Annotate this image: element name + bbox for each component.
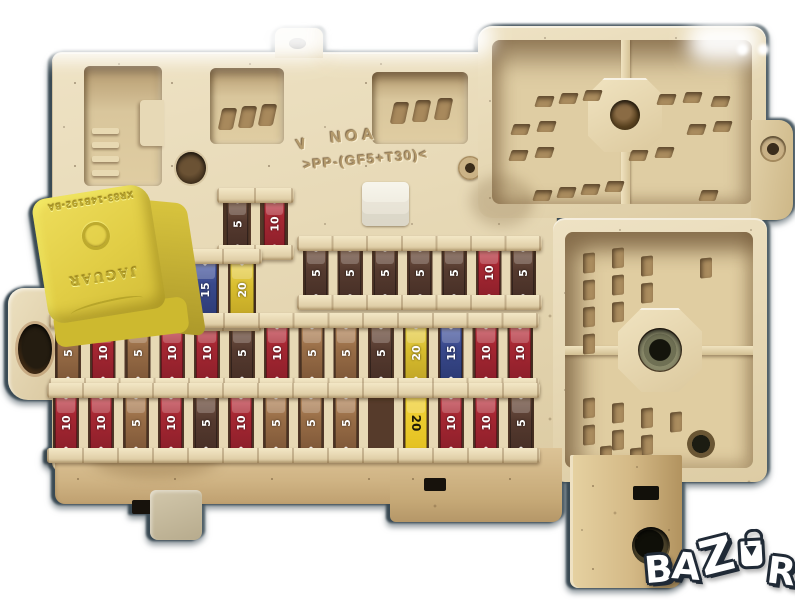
fuse-row-bottom-row: 10105105105552010105 [53, 392, 534, 454]
fuse-window [477, 394, 495, 413]
watermark-blur [22, 10, 327, 60]
fuse-amp-label: 5 [315, 412, 377, 434]
fuse-window [442, 394, 460, 413]
yellow-relay: JAGUAR XR83-14B192-BA [33, 175, 209, 346]
relay-top-face: JAGUAR XR83-14B192-BA [31, 182, 167, 325]
fuse-box-photo: ∨ NOA >PP-(GF5+T30)< [0, 0, 795, 600]
fuse-window [442, 324, 460, 343]
fuse-window [337, 324, 355, 343]
fuse-window [162, 394, 180, 413]
fuse-window [407, 324, 425, 343]
fuse-row-upper-row: 55555105 [303, 245, 536, 301]
fuse-window [57, 394, 75, 413]
relay-brand-text: JAGUAR [66, 262, 138, 289]
fuse-window [477, 324, 495, 343]
bazar-letter: Z [693, 526, 739, 588]
watermark-dot [779, 44, 790, 55]
fuse-window [232, 260, 252, 279]
fuse-amp-label: 5 [490, 412, 552, 434]
fuse-window [512, 394, 530, 413]
relay-markings: JAGUAR XR83-14B192-BA [35, 187, 162, 321]
watermark-blur [318, 16, 493, 58]
fuse-window [372, 324, 390, 343]
fuse-window [233, 324, 251, 343]
photo-stage: ∨ NOA >PP-(GF5+T30)< [0, 0, 795, 600]
fuse-amp-label: 20 [210, 278, 274, 302]
fuse-5a: 5 [335, 392, 357, 454]
fuse-row-cluster-top-row: 510 [223, 197, 288, 251]
fuse-window [127, 394, 145, 413]
fuse-window [92, 394, 110, 413]
relay-mold-ring [80, 220, 112, 252]
fuse-amp-label: 10 [489, 342, 551, 364]
watermark-dot [737, 44, 748, 55]
fuse-5a: 5 [227, 197, 248, 251]
fuse-window [407, 394, 425, 413]
bazar-logo: BAZR [638, 520, 795, 600]
fuse-window [197, 394, 215, 413]
bazar-logo-letters: BAZR [644, 534, 795, 589]
fuse-window [232, 394, 250, 413]
relay-part-number: XR83-14B192-BA [47, 189, 134, 212]
fuse-window [337, 394, 355, 413]
shopping-bag-a-icon [737, 537, 766, 569]
fuse-5a: 5 [512, 245, 534, 301]
watermark-dot [758, 44, 769, 55]
fuse-window [267, 394, 285, 413]
fuse-window [302, 394, 320, 413]
fuse-window [511, 324, 529, 343]
watermark-blur [688, 20, 760, 62]
fuse-amp-label: 10 [247, 214, 301, 235]
fuse-amp-label: 5 [495, 262, 551, 284]
fuse-10a: 10 [264, 197, 285, 251]
fuse-window [268, 324, 286, 343]
bazar-letter: R [765, 548, 795, 594]
fuse-window [303, 324, 321, 343]
fuse-5a: 5 [510, 392, 532, 454]
fuse-10a: 10 [509, 322, 531, 384]
